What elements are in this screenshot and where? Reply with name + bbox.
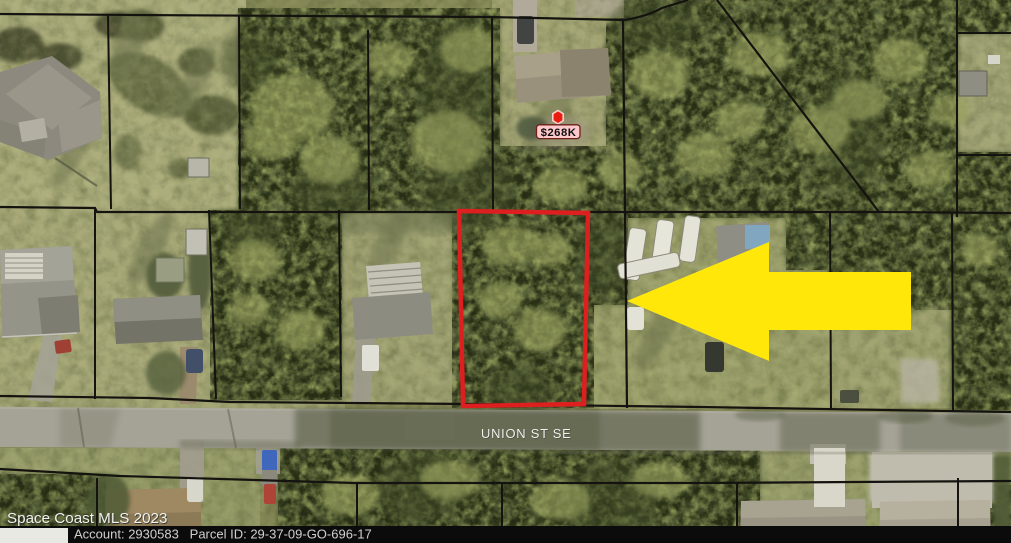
svg-text:$268K: $268K [541, 127, 577, 139]
svg-text:Account: 2930583 Parcel ID:: Account: 2930583 Parcel ID: 29-37-09-GO-… [74, 526, 372, 541]
svg-text:Space Coast MLS 2023: Space Coast MLS 2023 [7, 510, 167, 527]
svg-text:UNION ST SE: UNION ST SE [481, 426, 572, 441]
